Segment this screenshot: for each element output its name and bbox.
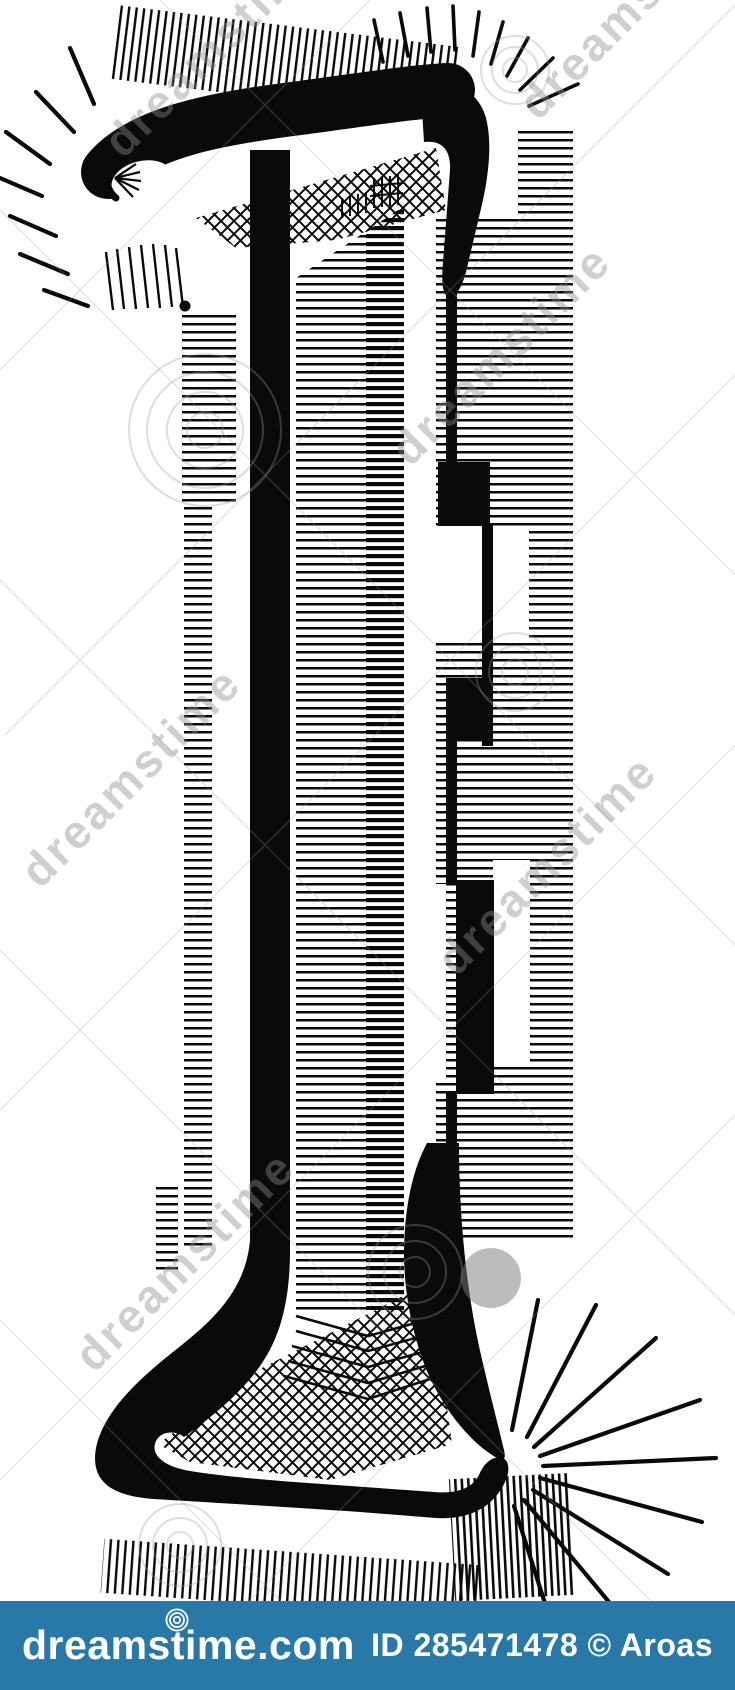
- spiral-blob: [461, 1248, 521, 1308]
- watermark-text: dreamstime: [508, 0, 735, 129]
- logo-spiral-icon: [164, 1607, 190, 1633]
- numeral-one-illustration: dreamstime dreamstime dreamstime dreamst…: [0, 0, 735, 1690]
- watermark-text: dreamstime: [10, 656, 251, 897]
- right-hatch-band-top: [518, 126, 573, 216]
- image-id-credit: ID 285471478 © Aroas: [371, 1627, 713, 1664]
- left-hatch-column: [184, 505, 212, 1247]
- stock-image-canvas: dreamstime dreamstime dreamstime dreamst…: [0, 0, 735, 1690]
- dreamstime-logo: dreamstime.com: [22, 1622, 355, 1669]
- watermark-footer-bar: dreamstime.com ID 285471478 © Aroas: [0, 1601, 735, 1690]
- top-left-sunburst: [0, 48, 94, 306]
- left-upper-hatch-band: [182, 312, 236, 505]
- under-flag-crosshatch: [196, 148, 446, 248]
- middle-hatch-band-bold-edge: [366, 206, 404, 1310]
